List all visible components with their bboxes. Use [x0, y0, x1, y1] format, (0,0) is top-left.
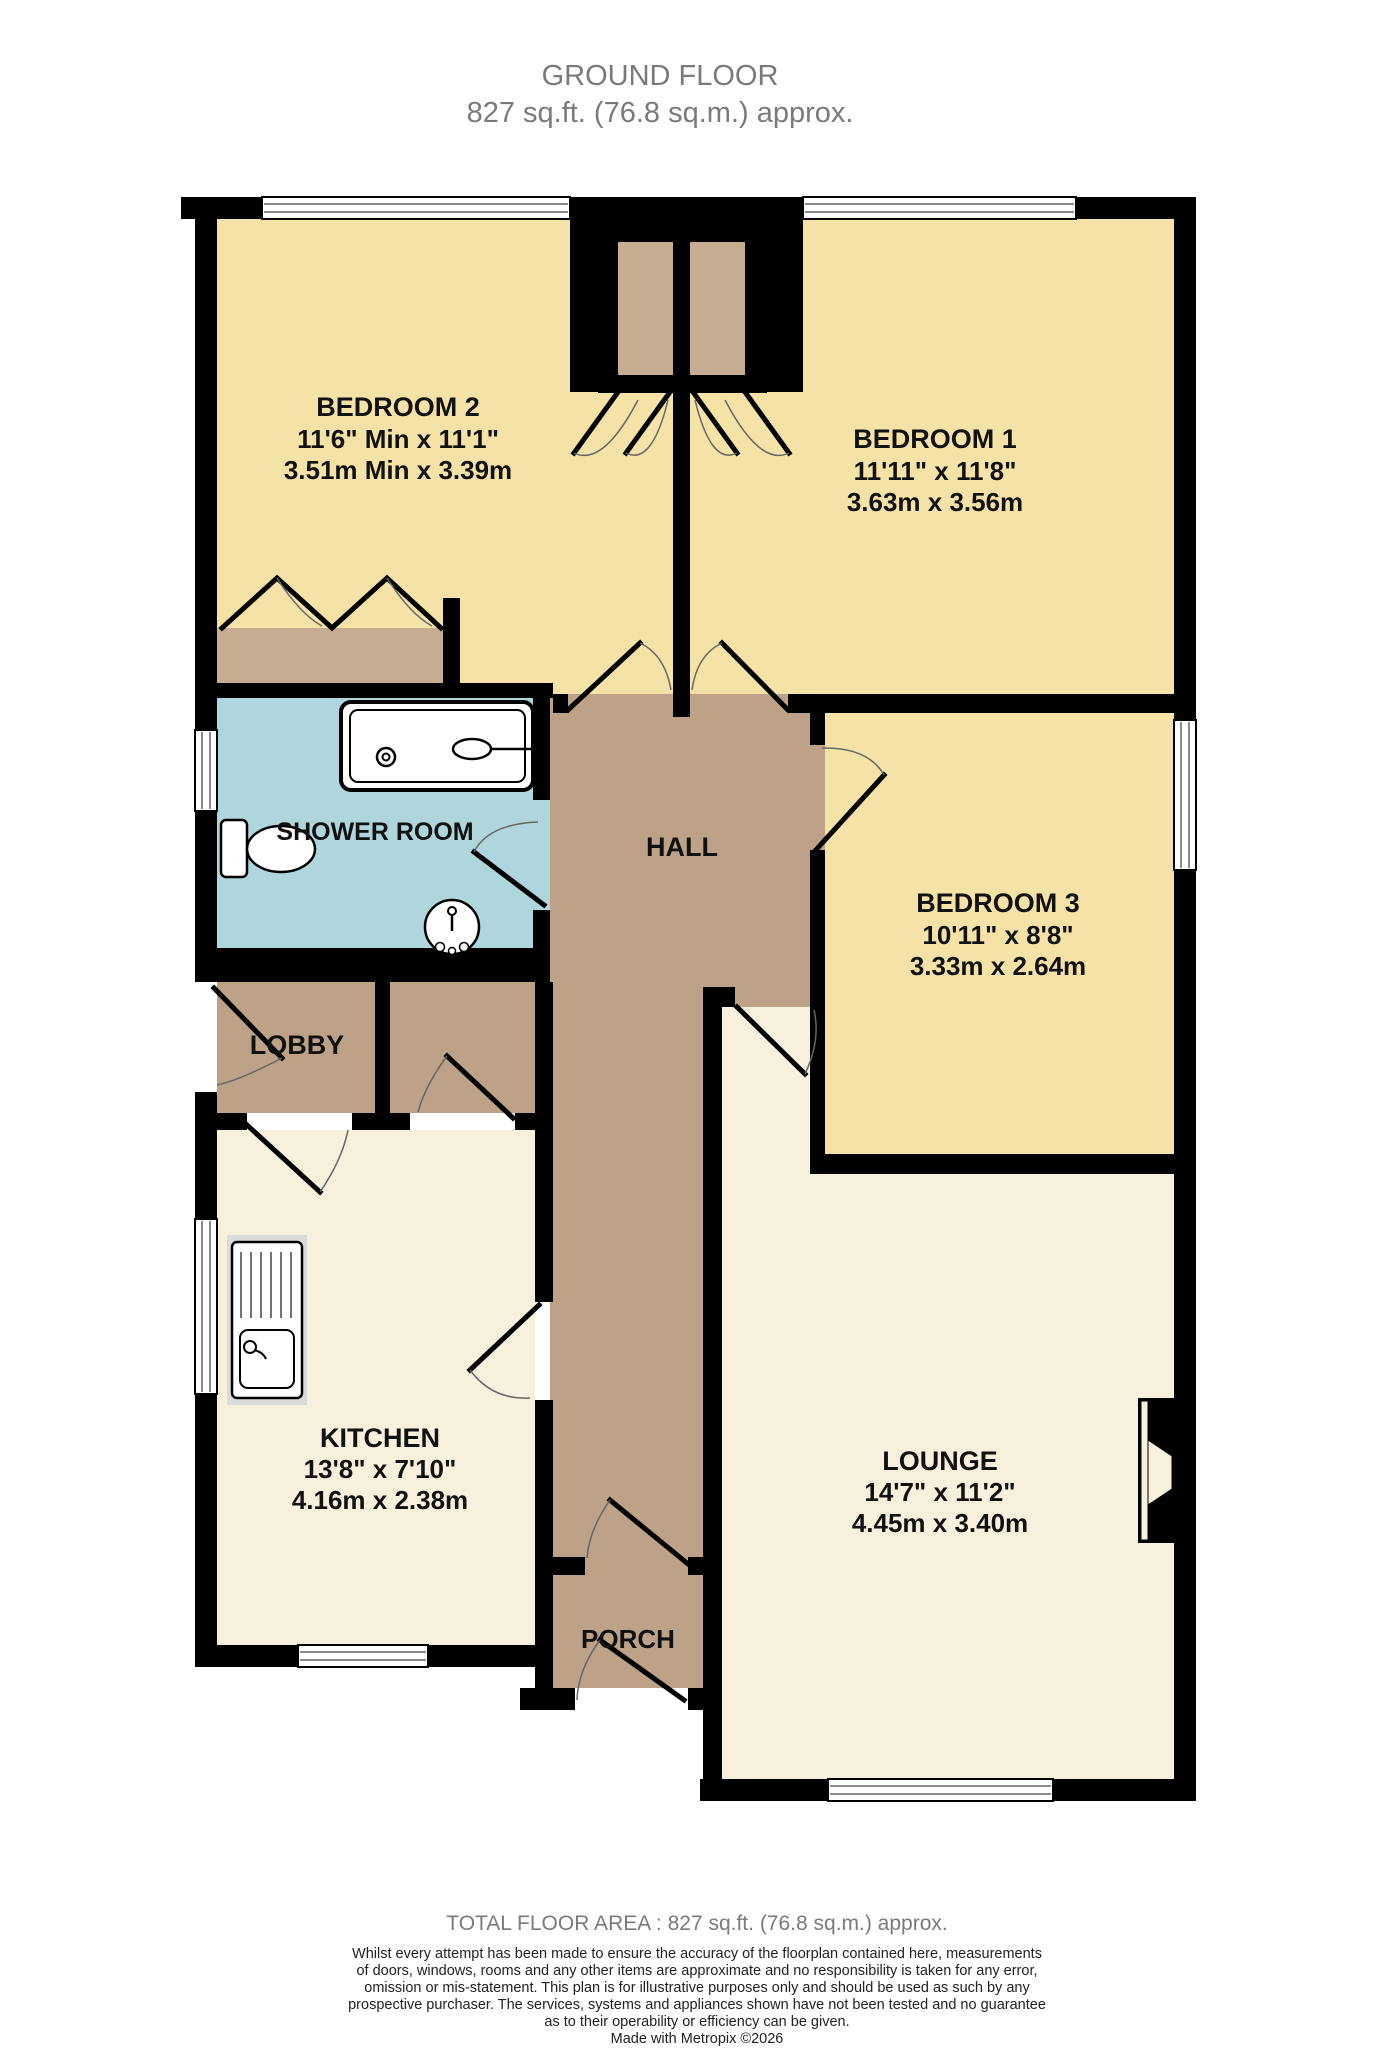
shower-room-label: SHOWER ROOM [276, 818, 473, 846]
lounge-size-imperial: 14'7" x 11'2" [864, 1477, 1015, 1507]
bedroom1-size-metric: 3.63m x 3.56m [847, 487, 1023, 517]
window-kitchen-bottom [298, 1645, 428, 1667]
bedroom2-size-metric: 3.51m Min x 3.39m [284, 455, 512, 485]
fireplace-icon [1138, 1398, 1176, 1543]
kitchen-size-metric: 4.16m x 2.38m [292, 1485, 468, 1515]
bedroom1-size-imperial: 11'11" x 11'8" [854, 456, 1017, 486]
lobby-label: LOBBY [250, 1030, 345, 1060]
lounge-label: LOUNGE [882, 1446, 998, 1476]
plan-title: GROUND FLOOR [542, 60, 779, 92]
porch-label: PORCH [581, 1624, 675, 1654]
disclaimer-line: Whilst every attempt has been made to en… [352, 1946, 1042, 1962]
plan-title-area: 827 sq.ft. (76.8 sq.m.) approx. [467, 97, 854, 129]
bedroom3-label: BEDROOM 3 [916, 888, 1080, 918]
window-bedroom1-top [803, 197, 1076, 219]
bedroom2-wardrobe-floor [217, 628, 443, 683]
disclaimer-line: prospective purchaser. The services, sys… [348, 1997, 1046, 2013]
disclaimer-line: of doors, windows, rooms and any other i… [356, 1963, 1037, 1979]
window-lounge-bottom [828, 1779, 1053, 1801]
floorplan-drawing: GROUND FLOOR 827 sq.ft. (76.8 sq.m.) app… [0, 0, 1395, 2048]
window-bedroom3-right [1174, 720, 1196, 870]
bedroom3-size-imperial: 10'11" x 8'8" [922, 920, 1073, 950]
floorplan-page: GROUND FLOOR 827 sq.ft. (76.8 sq.m.) app… [0, 0, 1395, 2048]
kitchen-sink-icon [227, 1235, 307, 1405]
lobby-side-door-opening [195, 982, 217, 1092]
basin-icon [425, 900, 479, 955]
bedroom1-label: BEDROOM 1 [853, 424, 1017, 454]
bedroom3-size-metric: 3.33m x 2.64m [910, 951, 1086, 981]
closet-right-floor [690, 242, 745, 375]
closet-left-floor [618, 242, 673, 375]
bedroom2-size-imperial: 11'6" Min x 11'1" [297, 424, 499, 454]
disclaimer-line: as to their operability or efficiency ca… [544, 2014, 849, 2030]
kitchen-size-imperial: 13'8" x 7'10" [304, 1454, 457, 1484]
window-shower-left [195, 730, 217, 811]
kitchen-label: KITCHEN [320, 1423, 440, 1453]
lounge-size-metric: 4.45m x 3.40m [852, 1508, 1028, 1538]
disclaimer-line: omission or mis-statement. This plan is … [364, 1980, 1030, 1996]
corridor-porch-floor [550, 1007, 722, 1688]
shower-tray-icon [341, 702, 533, 790]
total-floor-area: TOTAL FLOOR AREA : 827 sq.ft. (76.8 sq.m… [446, 1912, 947, 1935]
bedroom2-label: BEDROOM 2 [316, 392, 480, 422]
credit-line: Made with Metropix ©2026 [611, 2031, 784, 2047]
window-bedroom2-top [262, 197, 570, 219]
window-kitchen-left [195, 1219, 217, 1394]
hall-label: HALL [646, 832, 718, 862]
